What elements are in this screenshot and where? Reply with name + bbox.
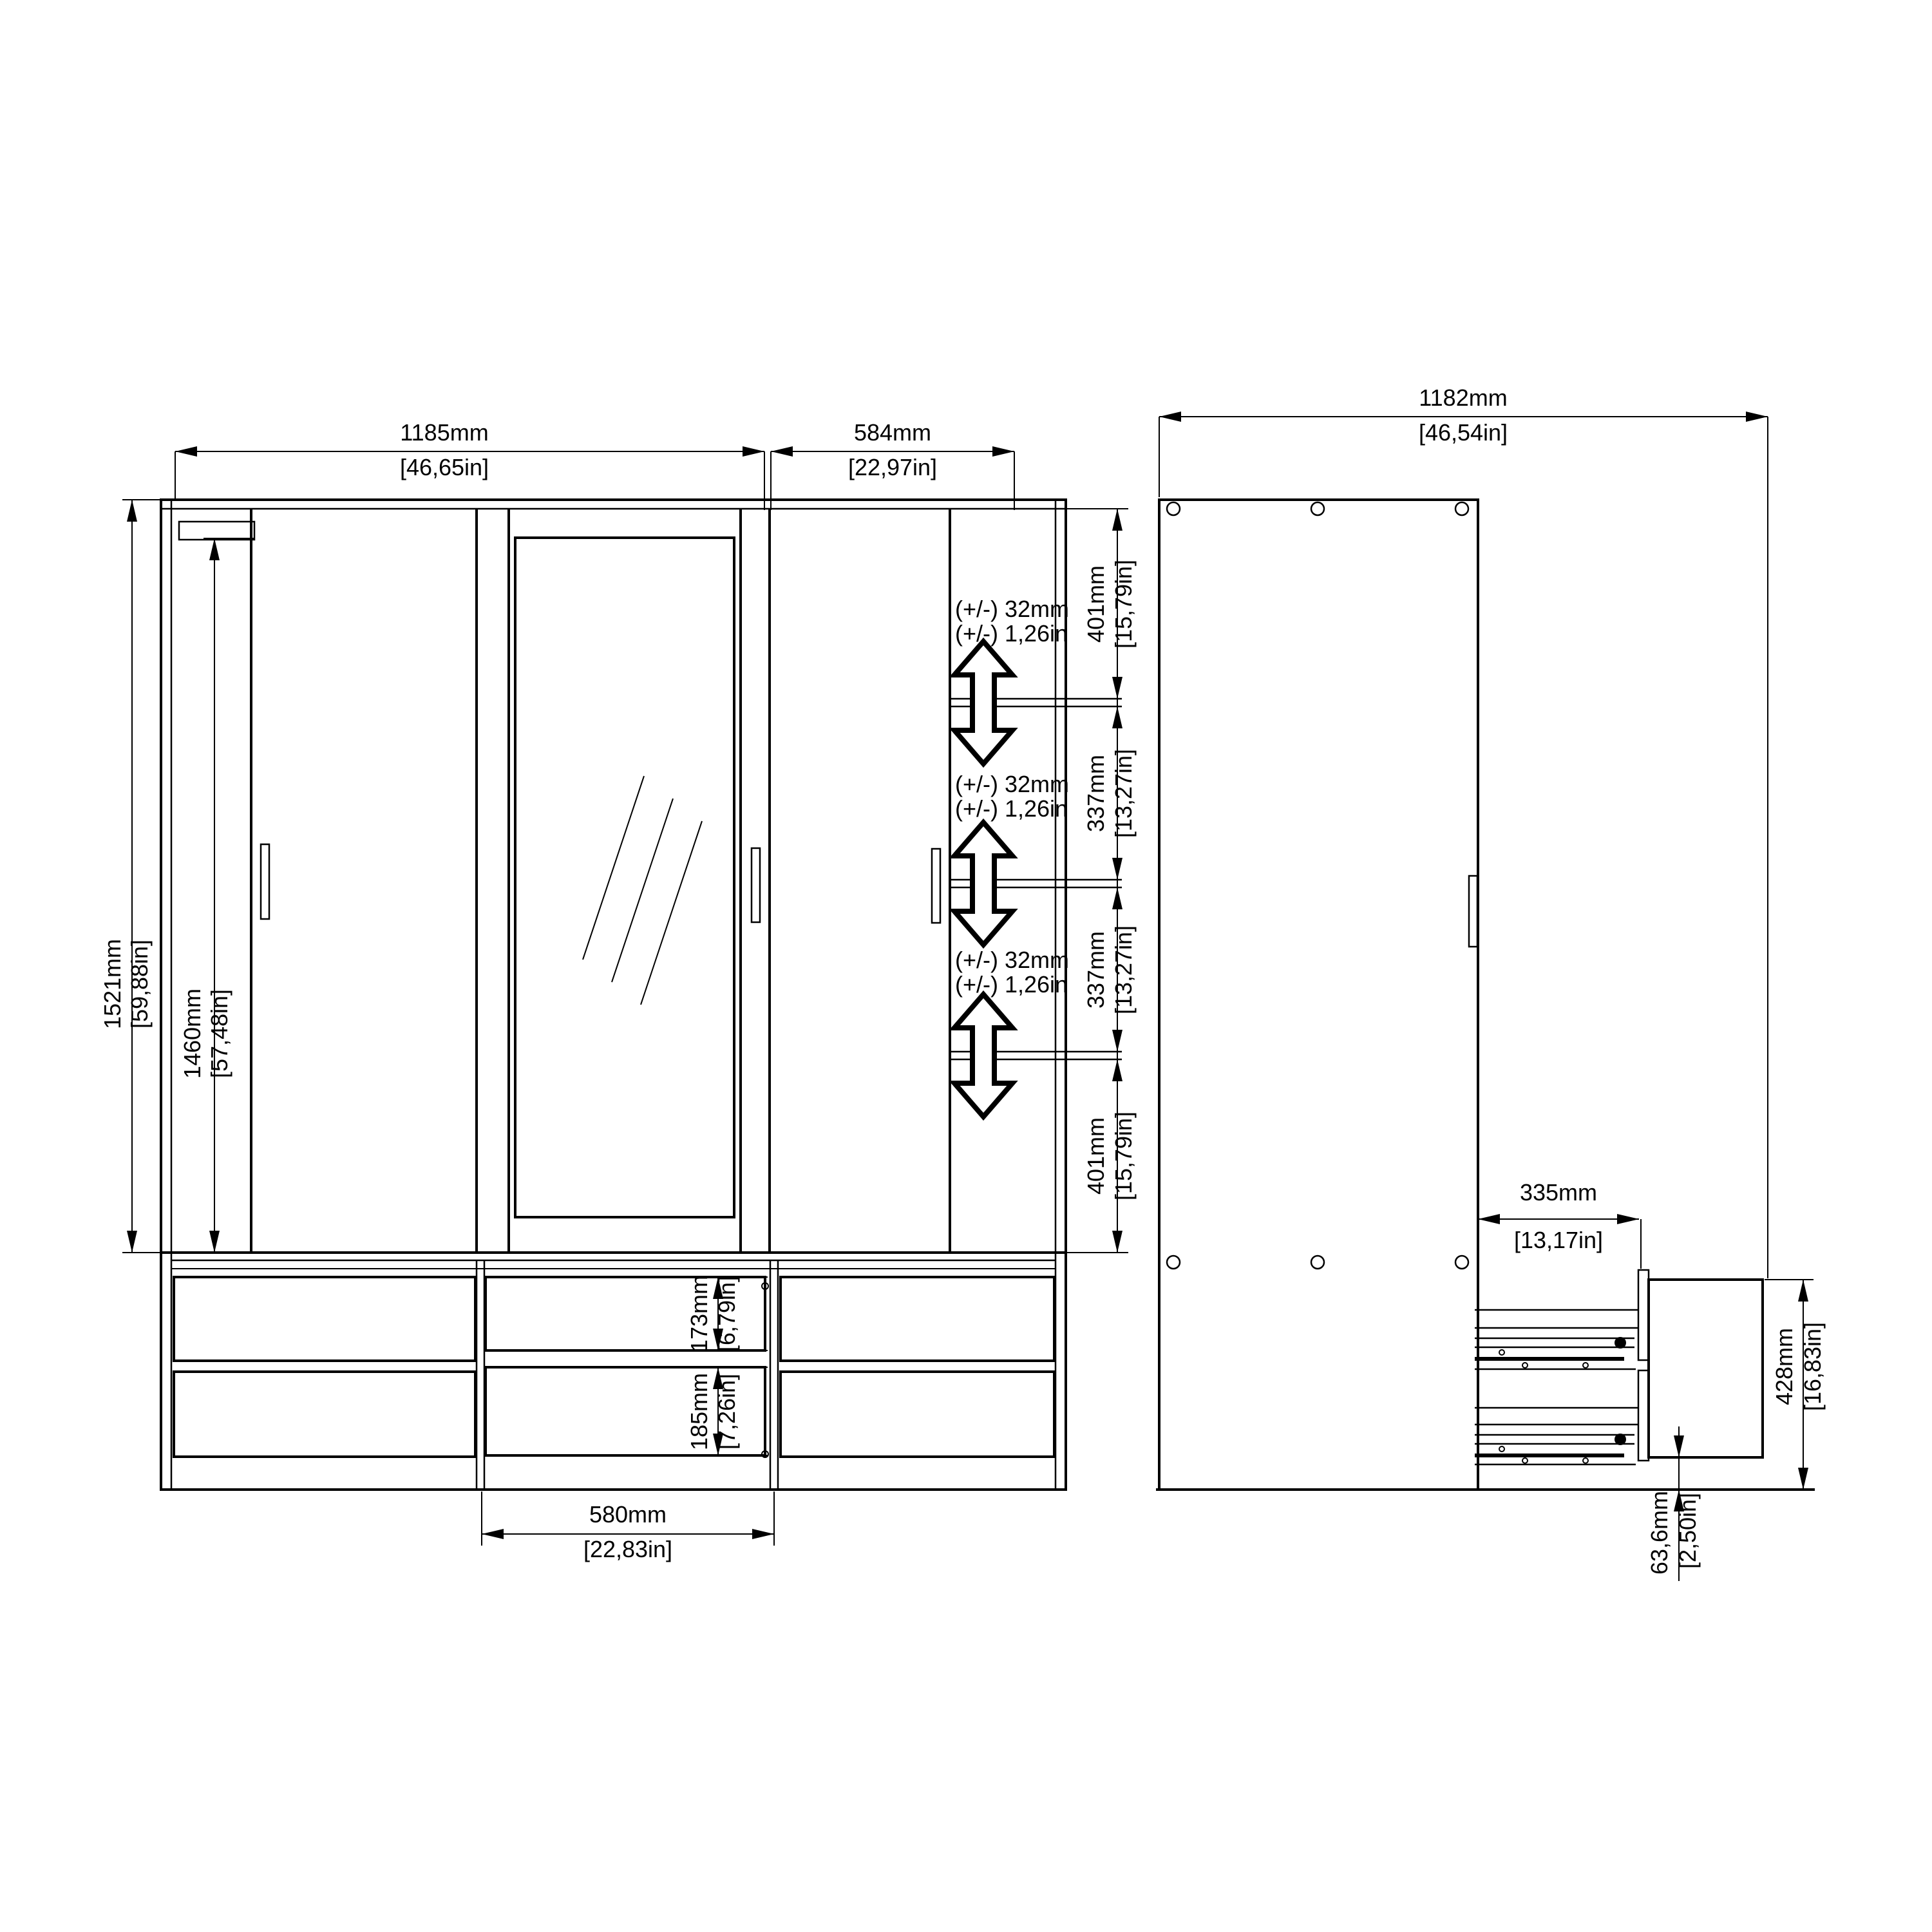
dim-depth-total-in: [46,54in] — [1419, 419, 1508, 446]
dim-drawer-unit-height-mm: 428mm — [1771, 1328, 1797, 1405]
dim-height-door: 1460mm [57,48in] — [179, 538, 254, 1253]
dim-drawer-unit-height-in: [16,83in] — [1799, 1322, 1826, 1411]
dim-width-left-mm: 1185mm — [400, 419, 488, 446]
shelf-adjust-label-mm: (+/-) 32mm — [955, 596, 1069, 622]
drawer-box-open — [1649, 1280, 1763, 1457]
slide-screw — [1499, 1350, 1504, 1355]
dim-drawer-front-top-in: [6,79in] — [714, 1276, 740, 1352]
slide-screw — [1522, 1363, 1528, 1368]
dim-shelf-seg4-mm: 401mm — [1083, 1117, 1109, 1195]
drawer-front — [174, 1372, 475, 1457]
double-arrow-icon — [954, 641, 1012, 764]
drawer-slide-lower — [1475, 1408, 1639, 1464]
drawer-front-edge — [1638, 1270, 1649, 1360]
dim-width-left-in: [46,65in] — [400, 454, 489, 480]
dim-plinth-gap: 63,6mm [2,50in] — [1646, 1426, 1701, 1581]
dim-height-overall-mm: 1521mm — [99, 939, 126, 1029]
sliding-rail-detail — [179, 522, 254, 540]
cam-hole — [1167, 502, 1180, 515]
drawer-unit — [174, 1260, 1054, 1490]
dim-plinth-gap-in: [2,50in] — [1674, 1493, 1701, 1569]
cabinet-outer-rect — [161, 500, 1066, 1490]
cabinet-outline — [161, 500, 1066, 1490]
dim-depth-total: 1182mm [46,54in] — [1159, 384, 1768, 1278]
slide-screw — [1583, 1458, 1588, 1463]
drawer-front — [174, 1277, 475, 1361]
shelf-adjust-label-in: (+/-) 1,26in — [955, 795, 1068, 822]
dim-drawer-front-bottom: 185mm [7,26in] — [686, 1367, 768, 1455]
dim-drawer-unit-height: 428mm [16,83in] — [1765, 1280, 1826, 1490]
dim-plinth-gap-mm: 63,6mm — [1646, 1491, 1672, 1575]
drawer-slide-upper — [1475, 1310, 1639, 1369]
dim-width-right-in: [22,97in] — [848, 454, 937, 480]
shelf-adjust-arrows: (+/-) 32mm (+/-) 1,26in (+/-) 32mm (+/-)… — [954, 596, 1069, 1117]
dim-drawer-front-bottom-mm: 185mm — [686, 1373, 712, 1450]
drawer-front — [781, 1372, 1054, 1457]
dim-shelf-seg3-in: [13,27in] — [1110, 925, 1137, 1014]
wardrobe-technical-drawing: (+/-) 32mm (+/-) 1,26in (+/-) 32mm (+/-)… — [0, 0, 1932, 1932]
shelf-adjust-label-in: (+/-) 1,26in — [955, 971, 1068, 998]
shelf-adjust-label-mm: (+/-) 32mm — [955, 947, 1069, 973]
slide-screw — [1583, 1363, 1588, 1368]
cam-hole — [1311, 502, 1324, 515]
drawing-page: (+/-) 32mm (+/-) 1,26in (+/-) 32mm (+/-)… — [0, 0, 1932, 1932]
dim-height-overall-in: [59,88in] — [126, 940, 153, 1028]
slide-screw — [1499, 1446, 1504, 1452]
dim-shelf-seg2-in: [13,27in] — [1110, 749, 1137, 838]
cam-fittings — [1167, 502, 1468, 1269]
side-view: 1182mm [46,54in] 335mm [13,17in] — [1156, 384, 1826, 1581]
dim-drawer-front-top-mm: 173mm — [686, 1275, 712, 1352]
cam-hole — [1167, 1256, 1180, 1269]
dim-width-right-mm: 584mm — [854, 419, 931, 446]
drawer-front-edge — [1638, 1370, 1649, 1461]
shelf-adjust-label-mm: (+/-) 32mm — [955, 771, 1069, 797]
double-arrow-icon — [954, 822, 1012, 945]
mirror-shine-line — [641, 821, 702, 1005]
front-view: (+/-) 32mm (+/-) 1,26in (+/-) 32mm (+/-)… — [99, 419, 1137, 1562]
dim-shelf-seg3-mm: 337mm — [1083, 931, 1109, 1009]
slide-screw — [1522, 1458, 1528, 1463]
mirror-frame — [515, 538, 734, 1217]
mirror-shine-line — [583, 776, 644, 960]
mirror-door — [515, 538, 734, 1217]
shelf-dimension-chain: 401mm [15,79in] 337mm [13,27in] 337mm [1… — [1066, 509, 1137, 1253]
dim-drawer-width: 580mm [22,83in] — [482, 1492, 774, 1562]
dim-height-door-mm: 1460mm — [179, 989, 205, 1079]
door-left-handle — [261, 844, 269, 919]
side-door-handle — [1469, 876, 1477, 947]
dim-shelf-seg1-in: [15,79in] — [1110, 560, 1137, 649]
dim-drawer-depth-mm: 335mm — [1520, 1179, 1597, 1206]
dim-shelf-seg2-mm: 337mm — [1083, 755, 1109, 832]
dim-height-overall: 1521mm [59,88in] — [99, 500, 161, 1253]
cam-hole — [1311, 1256, 1324, 1269]
sliding-doors — [251, 509, 950, 1253]
cam-hole — [1455, 502, 1468, 515]
dim-depth-total-mm: 1182mm — [1419, 384, 1507, 411]
dim-drawer-front-bottom-in: [7,26in] — [714, 1374, 740, 1450]
cam-hole — [1455, 1256, 1468, 1269]
dim-drawer-width-in: [22,83in] — [583, 1536, 672, 1562]
side-panel — [1159, 500, 1478, 1490]
door-right-handle — [932, 849, 940, 923]
dim-height-door-in: [57,48in] — [206, 989, 232, 1078]
dim-shelf-seg4-in: [15,79in] — [1110, 1112, 1137, 1200]
mirror-shine-line — [612, 799, 673, 982]
drawer-front — [781, 1277, 1054, 1361]
dim-drawer-depth-in: [13,17in] — [1514, 1227, 1603, 1253]
dim-drawer-width-mm: 580mm — [589, 1501, 667, 1528]
shelf-adjust-label-in: (+/-) 1,26in — [955, 620, 1068, 647]
slide-screw — [1615, 1434, 1626, 1445]
door-middle-handle — [752, 848, 760, 922]
dim-drawer-depth: 335mm [13,17in] — [1478, 1179, 1641, 1269]
dim-width-right: 584mm [22,97in] — [771, 419, 1014, 510]
double-arrow-icon — [954, 994, 1012, 1117]
dim-drawer-front-top: 173mm [6,79in] — [686, 1275, 768, 1352]
dim-width-left: 1185mm [46,65in] — [175, 419, 764, 510]
dim-shelf-seg1-mm: 401mm — [1083, 565, 1109, 643]
slide-screw — [1615, 1337, 1626, 1349]
